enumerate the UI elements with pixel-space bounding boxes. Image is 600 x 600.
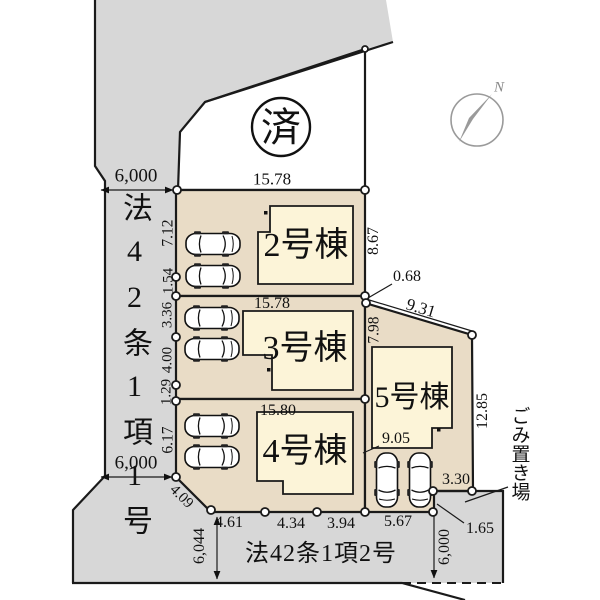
dim-lot5-width: 9.05: [382, 431, 410, 447]
dim-road-bottom-width-left: 6,044: [192, 528, 208, 564]
door-mark: [267, 368, 271, 372]
door-mark: [264, 211, 268, 215]
sold-mark: 済: [261, 108, 301, 148]
dim-lot4-top: 15.80: [260, 403, 296, 419]
dim-seg-1-29: 1.29: [160, 379, 175, 405]
site-plan-drawing: [0, 0, 600, 600]
dim-lot2-left: 7.12: [160, 219, 176, 246]
dim-seg-6-17: 6.17: [160, 426, 176, 453]
road-left-label: 法42条1項1号: [119, 192, 149, 548]
door-mark: [437, 428, 441, 432]
car-icon: [186, 263, 240, 289]
road-bottom-boundary: [72, 583, 465, 600]
dim-road-top-width: 6,000: [115, 167, 158, 186]
garbage-area-label: ごみ置き場: [510, 406, 529, 501]
dim-seg-3-30: 3.30: [442, 472, 470, 488]
dim-road-bottom-width-right: 6,000: [437, 529, 453, 565]
car-icon: [185, 305, 239, 331]
dim-lot2-right: 8.67: [366, 227, 382, 255]
car-icon: [185, 336, 239, 362]
dim-seg-3-36: 3.36: [161, 302, 176, 328]
dim-lot3-top: 15.78: [254, 296, 290, 312]
dim-lot3-right: 7.98: [366, 316, 382, 343]
lot-2-label: 2号棟: [264, 229, 349, 263]
dim-seg-1-65: 1.65: [466, 521, 494, 537]
car-icon: [374, 453, 400, 507]
dim-seg-0-68: 0.68: [393, 269, 421, 285]
car-icon: [407, 453, 433, 507]
dim-bottom-3: 3.94: [327, 516, 355, 532]
dim-bottom-1: 4.61: [215, 515, 243, 531]
dim-bottom-4: 5.67: [384, 514, 412, 530]
dim-seg-4-00: 4.00: [161, 347, 176, 373]
lot-3-label: 3号棟: [263, 332, 348, 366]
car-icon: [185, 413, 239, 439]
leader-0-68: [368, 284, 392, 298]
compass-north-label: N: [494, 81, 504, 96]
car-icon: [185, 444, 239, 470]
dim-lot5-right: 12.85: [475, 393, 491, 429]
dim-seg-1-54: 1.54: [162, 268, 177, 294]
dim-bottom-2: 4.34: [277, 516, 305, 532]
compass-icon: [451, 94, 503, 146]
lot-5-label: 5号棟: [375, 383, 450, 413]
lot-4-label: 4号棟: [263, 435, 348, 469]
dim-lot2-top: 15.78: [253, 171, 291, 188]
car-icon: [186, 231, 240, 257]
road-bottom-label: 法42条1項2号: [245, 542, 397, 566]
site-plan: 6,000 15.78 7.12 1.54 3.36 4.00 1.29 6.1…: [0, 0, 600, 600]
